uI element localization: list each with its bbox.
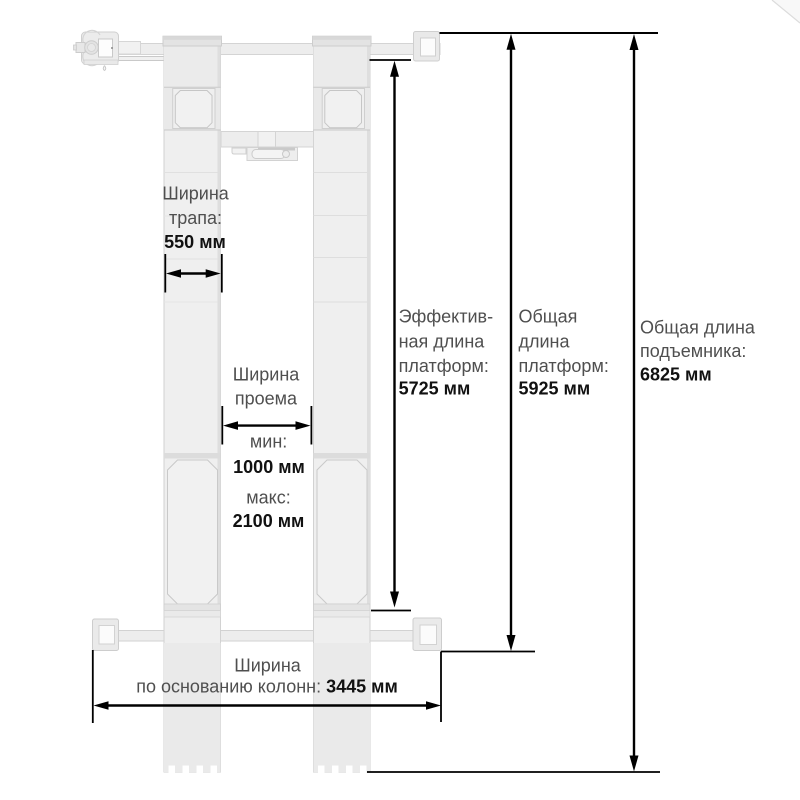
svg-text:Общая длина: Общая длина xyxy=(640,318,756,338)
svg-text:проема: проема xyxy=(235,388,298,408)
svg-text:550 мм: 550 мм xyxy=(164,232,226,252)
svg-text:Ширина: Ширина xyxy=(162,184,230,204)
svg-text:платформ:: платформ: xyxy=(399,356,489,376)
svg-text:платформ:: платформ: xyxy=(519,356,609,376)
svg-text:6825 мм: 6825 мм xyxy=(640,364,712,384)
svg-text:Ширина: Ширина xyxy=(234,655,302,675)
svg-text:5725 мм: 5725 мм xyxy=(399,378,471,398)
svg-text:2100 мм: 2100 мм xyxy=(233,511,305,531)
svg-text:длина: длина xyxy=(519,331,571,351)
svg-text:5925 мм: 5925 мм xyxy=(519,378,591,398)
svg-text:подъемника:: подъемника: xyxy=(640,341,746,361)
svg-text:Общая: Общая xyxy=(519,306,578,326)
svg-text:трапа:: трапа: xyxy=(169,208,222,228)
svg-text:Ширина: Ширина xyxy=(233,365,301,385)
svg-text:1000 мм: 1000 мм xyxy=(233,457,305,477)
svg-text:макс:: макс: xyxy=(246,488,290,508)
svg-text:Эффектив-: Эффектив- xyxy=(399,306,494,326)
svg-text:по основанию колонн: 3445 мм: по основанию колонн: 3445 мм xyxy=(136,676,398,696)
svg-text:ная длина: ная длина xyxy=(399,331,486,351)
svg-text:мин:: мин: xyxy=(250,431,287,451)
